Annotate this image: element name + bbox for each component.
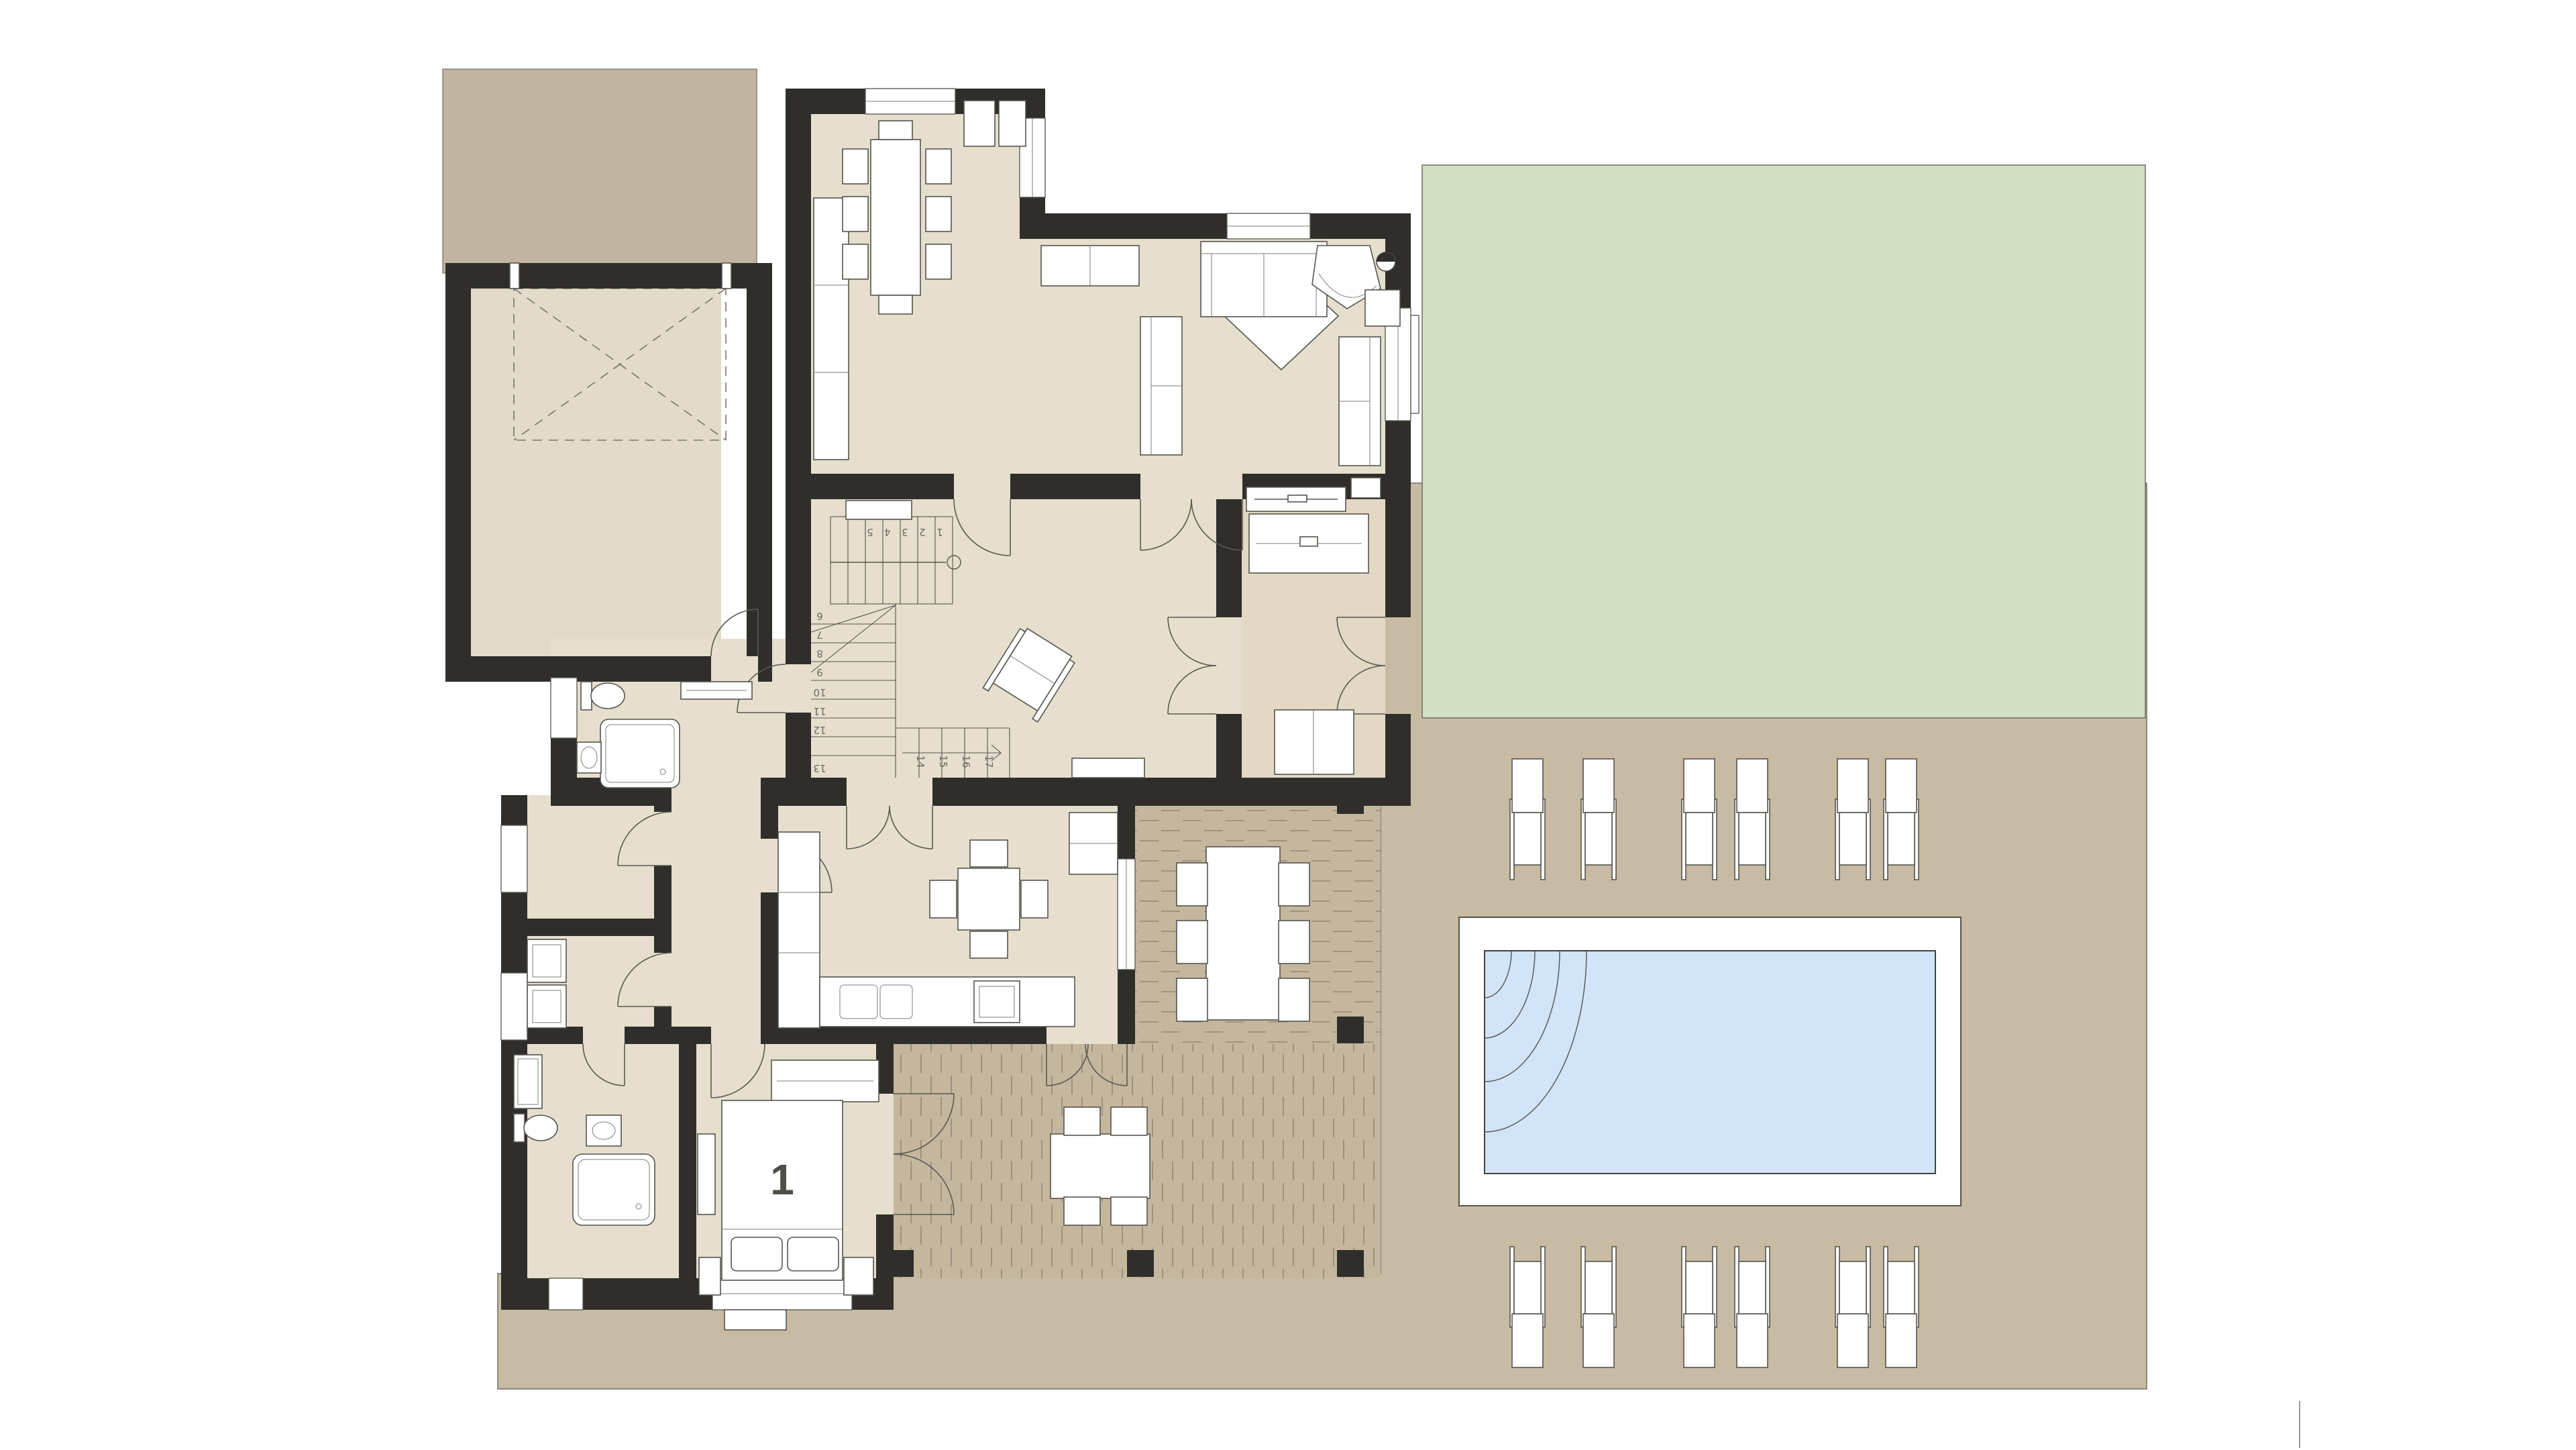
pergola-chair — [1177, 921, 1207, 964]
floor-garage — [471, 289, 721, 656]
shower-tray — [573, 1154, 655, 1225]
kitchen-chair — [970, 840, 1008, 867]
nightstand — [699, 1257, 720, 1295]
dining-chair — [843, 149, 868, 184]
wall — [551, 738, 577, 806]
kitchen-counter-left — [778, 832, 820, 1028]
stair-number: 14 — [914, 755, 926, 768]
kitchen-counter-bottom — [820, 977, 1075, 1027]
hall-sideboard — [1072, 758, 1144, 778]
entry-closet — [1275, 710, 1354, 774]
pergola-chair — [1177, 863, 1207, 906]
wall — [1045, 213, 1227, 239]
nightstand — [844, 1257, 873, 1295]
wall — [501, 795, 527, 825]
stair-number: 15 — [937, 755, 949, 768]
stair-number: 5 — [867, 526, 873, 538]
stair-number: 7 — [816, 629, 823, 641]
deck-chair — [1064, 1197, 1100, 1225]
sun-lounger — [1884, 759, 1919, 880]
pergola-post — [1127, 1250, 1154, 1277]
wall — [786, 474, 954, 499]
sun-lounger — [1735, 759, 1770, 880]
bedroom-dresser — [698, 1134, 715, 1214]
wall — [932, 778, 1135, 806]
stair-number: 11 — [813, 705, 826, 717]
pergola-chair — [1177, 978, 1207, 1021]
wall — [747, 289, 772, 656]
breakfast-table — [958, 868, 1020, 930]
wall — [1118, 806, 1135, 859]
sun-lounger — [1835, 759, 1870, 880]
bed-pillow — [731, 1237, 782, 1271]
window — [551, 678, 577, 738]
sun-lounger — [1682, 759, 1717, 880]
driveway — [443, 69, 757, 273]
dining-table-end — [879, 295, 912, 314]
toilet-tank — [514, 1114, 525, 1142]
media-item — [1288, 495, 1307, 502]
toilet-bowl — [524, 1115, 557, 1141]
wall — [625, 1027, 711, 1044]
pergola-post — [1337, 1017, 1364, 1043]
pergola-chair — [1279, 978, 1309, 1021]
pergola-dining-table — [1206, 847, 1280, 1020]
toilet-tank — [581, 682, 592, 710]
pergola-post — [1337, 1250, 1364, 1277]
stair-number: 17 — [983, 755, 995, 768]
garage-door-jamb — [510, 263, 519, 289]
pool-water — [1485, 951, 1935, 1174]
pergola-chair — [1279, 863, 1309, 906]
porch-step — [724, 1310, 786, 1330]
deck-chair — [1111, 1197, 1147, 1225]
deck-table — [1051, 1134, 1150, 1198]
kitchen-oven — [974, 981, 1020, 1023]
kitchen-chair — [1021, 880, 1048, 918]
stair-number: 4 — [884, 526, 891, 538]
wall — [761, 892, 778, 1044]
wall — [894, 1027, 1046, 1044]
sun-lounger — [1682, 1247, 1717, 1367]
stair-number: 3 — [902, 526, 908, 538]
sun-lounger — [1581, 759, 1616, 880]
shower-tray — [600, 719, 680, 788]
wall — [1135, 778, 1411, 806]
pergola-chair — [1279, 921, 1309, 964]
hall-sideboard — [846, 501, 912, 519]
dining-chair — [926, 197, 951, 231]
sun-lounger — [1835, 1247, 1870, 1367]
wall — [765, 1027, 894, 1044]
pool — [1459, 917, 1961, 1206]
wall — [1216, 499, 1242, 617]
sun-lounger — [1735, 1247, 1770, 1367]
wardrobe-hanger — [1300, 537, 1318, 546]
wall — [1127, 1027, 1135, 1044]
dining-chair — [926, 149, 951, 184]
sun-lounger — [1581, 1247, 1616, 1367]
wall — [501, 1278, 549, 1310]
dining-table-end — [879, 121, 912, 140]
garage-door-jamb — [722, 263, 731, 289]
stair-number: 2 — [919, 526, 926, 538]
dining-table — [871, 140, 920, 295]
stair-number: 12 — [813, 724, 826, 736]
wall — [1310, 213, 1411, 239]
bedroom-number: 1 — [770, 1155, 794, 1204]
sun-lounger — [1884, 1247, 1919, 1367]
dryer — [527, 985, 566, 1028]
deck-chair — [1064, 1107, 1100, 1135]
dining-chair — [843, 197, 868, 231]
stair-number: 8 — [816, 648, 823, 660]
lawn — [1422, 165, 2145, 718]
sun-lounger — [1510, 1247, 1545, 1367]
wall-cabinet — [1351, 478, 1381, 498]
window-sill — [1411, 315, 1419, 413]
wall — [445, 656, 711, 682]
stair-number: 10 — [813, 686, 826, 698]
floor-plan: 12345678910111213141516171 — [0, 0, 2576, 1450]
dining-sideboard — [814, 198, 849, 460]
wall — [1385, 499, 1411, 617]
wall — [761, 806, 778, 839]
sun-lounger — [1510, 759, 1545, 880]
kitchen-chair — [930, 880, 957, 918]
dining-chair — [926, 244, 951, 279]
washer — [527, 939, 566, 982]
wall — [501, 919, 672, 936]
dining-chair — [843, 244, 868, 279]
kitchen-cabinet — [999, 101, 1026, 146]
wall — [786, 499, 811, 664]
deck-chair — [1111, 1107, 1147, 1135]
wall — [445, 289, 471, 656]
side-table — [1365, 290, 1400, 326]
toilet-bowl — [591, 683, 625, 709]
window — [549, 1278, 583, 1310]
stair-number: 1 — [936, 526, 943, 538]
wall — [679, 1044, 696, 1310]
wall — [1010, 474, 1140, 499]
wall — [1020, 197, 1045, 239]
stair-number: 13 — [813, 762, 826, 774]
window — [501, 825, 527, 892]
stair-number: 16 — [960, 755, 972, 768]
stair-number: 9 — [816, 666, 823, 678]
window — [501, 973, 527, 1040]
wall — [551, 656, 577, 678]
wall — [583, 1278, 712, 1310]
stair-number: 6 — [816, 610, 823, 622]
kitchen-chair — [970, 931, 1008, 958]
wall — [654, 936, 672, 953]
kitchen-cabinet — [964, 101, 995, 146]
wall — [761, 778, 847, 806]
wall — [786, 89, 811, 499]
bed-pillow — [788, 1237, 839, 1271]
bathroom-basin — [586, 1115, 621, 1146]
